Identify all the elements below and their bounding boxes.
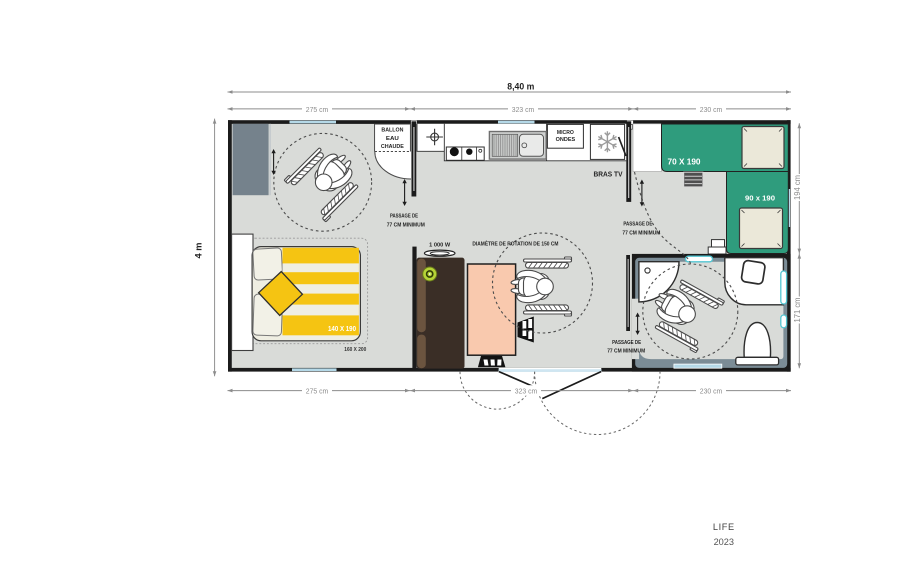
svg-text:4 m: 4 m xyxy=(194,243,204,259)
svg-text:2023: 2023 xyxy=(714,537,734,547)
svg-text:70 X 190: 70 X 190 xyxy=(668,157,702,166)
svg-text:BALLON: BALLON xyxy=(381,128,403,134)
svg-text:PASSAGE DE: PASSAGE DE xyxy=(612,340,641,346)
svg-text:EAU: EAU xyxy=(386,136,399,142)
svg-text:1 000 W: 1 000 W xyxy=(429,242,450,248)
svg-text:DIAMÈTRE DE ROTATION DE 150 CM: DIAMÈTRE DE ROTATION DE 150 CM xyxy=(472,239,558,247)
svg-text:BRAS TV: BRAS TV xyxy=(594,170,623,179)
svg-text:160 X 200: 160 X 200 xyxy=(344,347,366,353)
svg-text:8,40 m: 8,40 m xyxy=(507,82,534,92)
svg-text:194 cm: 194 cm xyxy=(793,175,802,200)
svg-text:ONDES: ONDES xyxy=(556,137,576,143)
svg-text:90 x 190: 90 x 190 xyxy=(745,193,775,202)
svg-text:230 cm: 230 cm xyxy=(700,387,723,396)
svg-text:323 cm: 323 cm xyxy=(515,387,538,396)
svg-text:LIFE: LIFE xyxy=(713,522,735,532)
svg-text:PASSAGE DE: PASSAGE DE xyxy=(390,213,418,219)
svg-text:171 cm: 171 cm xyxy=(793,298,802,323)
svg-text:MICRO: MICRO xyxy=(557,130,574,136)
svg-text:140 X 190: 140 X 190 xyxy=(328,324,356,333)
svg-text:CHAUDE: CHAUDE xyxy=(381,144,404,150)
svg-text:77 CM MINIMUM: 77 CM MINIMUM xyxy=(607,349,645,355)
svg-text:77 CM MINIMUM: 77 CM MINIMUM xyxy=(387,222,425,228)
svg-text:230 cm: 230 cm xyxy=(700,105,723,114)
svg-text:275 cm: 275 cm xyxy=(306,387,329,396)
svg-text:323 cm: 323 cm xyxy=(512,105,535,114)
svg-text:PASSAGE DE: PASSAGE DE xyxy=(623,222,652,228)
svg-text:275 cm: 275 cm xyxy=(306,105,329,114)
svg-text:77 CM MINIMUM: 77 CM MINIMUM xyxy=(622,230,660,236)
